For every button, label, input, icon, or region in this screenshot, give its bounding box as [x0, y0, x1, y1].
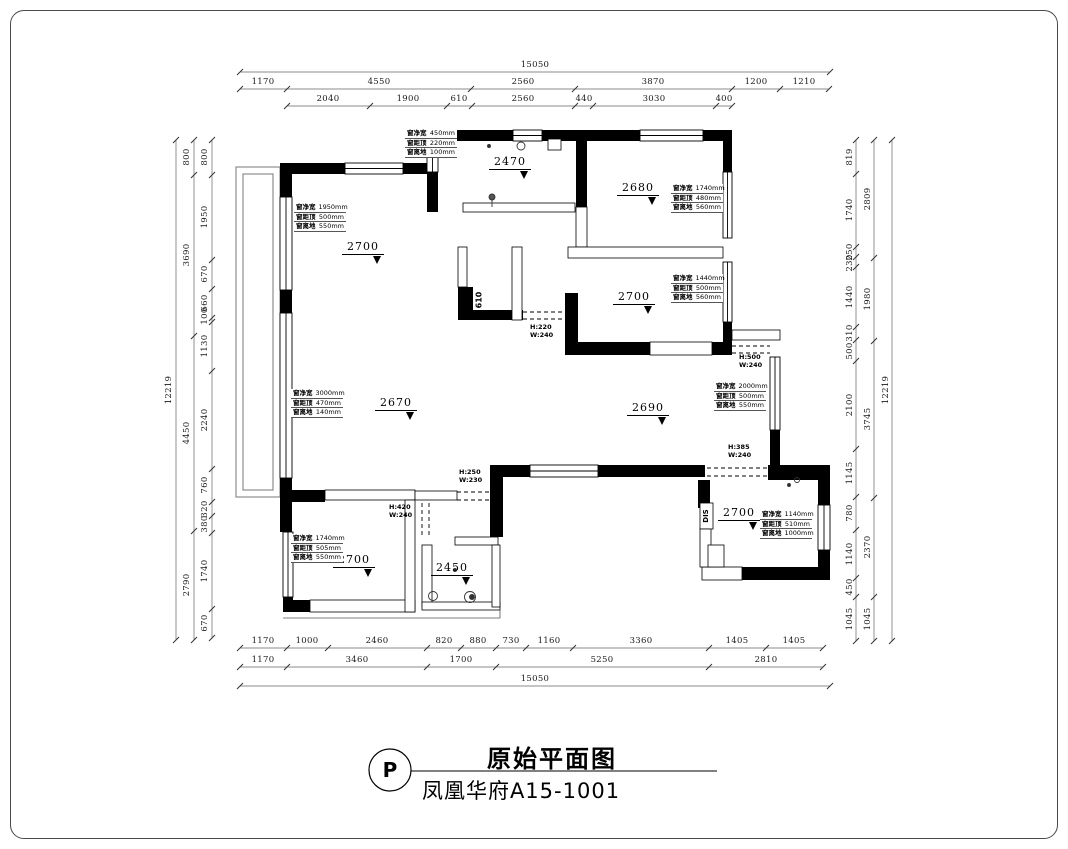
level-triangle-icon [406, 412, 414, 420]
level-triangle-icon [648, 197, 656, 205]
dim-label: 100 [200, 307, 210, 324]
dim-label: 820 [435, 636, 452, 646]
dim-label: 2100 [845, 394, 855, 417]
dim-label: 310 [845, 324, 855, 341]
dim-label: 800 [182, 148, 192, 165]
dim-label: 2040 [317, 94, 340, 104]
dim-label: 610 [450, 94, 467, 104]
dim-label: 2460 [366, 636, 389, 646]
level-triangle-icon [658, 417, 666, 425]
dim-label: 1700 [450, 655, 473, 665]
window-annotation: 窗净宽3000mm 窗距顶470mm 窗离地140mm [291, 389, 343, 418]
drawing-subtitle: 凤凰华府A15-1001 [422, 775, 620, 805]
dim-label: 2809 [863, 188, 873, 211]
dim-label: 15050 [521, 60, 550, 70]
dim-label: 3030 [643, 94, 666, 104]
dim-label: 1210 [793, 77, 816, 87]
dim-label: 4550 [368, 77, 391, 87]
dim-label: 730 [502, 636, 519, 646]
window-annotation: 窗净宽1740mm 窗距顶505mm 窗离地550mm [291, 534, 343, 563]
dim-label: 1045 [863, 608, 873, 631]
dim-label: 5250 [591, 655, 614, 665]
dim-label: 15050 [521, 674, 550, 684]
drawing-title: 原始平面图 [487, 739, 617, 774]
dim-label: 380 [200, 515, 210, 532]
level-label: 2700 [718, 507, 760, 530]
dim-label: 1145 [845, 462, 855, 485]
level-triangle-icon [520, 171, 528, 179]
dim-label: 2810 [755, 655, 778, 665]
beam-annotation: H:220W:240 [530, 324, 553, 339]
dis-label: DIS [702, 509, 710, 522]
dim-label: 819 [845, 148, 855, 165]
dim-label: 1130 [200, 335, 210, 358]
beam-annotation: H:500W:240 [739, 354, 762, 369]
dim-label: 1160 [538, 636, 561, 646]
level-label: 2470 [489, 156, 531, 179]
dim-label: 800 [200, 148, 210, 165]
dim-label: 1950 [200, 206, 210, 229]
dim-label: 4450 [182, 422, 192, 445]
dim-label: 500 [845, 342, 855, 359]
window-annotation: 窗净宽1950mm 窗距顶500mm 窗离地550mm [294, 203, 346, 232]
dim-label: 1170 [252, 77, 275, 87]
dim-label: 3745 [863, 408, 873, 431]
dim-label: 1440 [845, 286, 855, 309]
level-triangle-icon [644, 306, 652, 314]
window-annotation: 窗净宽2000mm 窗距顶500mm 窗离地550mm [714, 382, 766, 411]
window-annotation: 窗净宽450mm 窗距顶220mm 窗离地100mm [405, 129, 457, 158]
shaft-width-label: 610 [475, 292, 484, 309]
dim-label: 760 [200, 476, 210, 493]
dim-label: 1740 [200, 560, 210, 583]
level-triangle-icon [749, 522, 757, 530]
dim-label: 2240 [200, 409, 210, 432]
dim-label: 1045 [845, 608, 855, 631]
dim-label: 780 [845, 504, 855, 521]
dim-label: 12219 [881, 376, 891, 405]
dim-label: 1405 [783, 636, 806, 646]
dim-label: 1170 [252, 636, 275, 646]
balcony-railing [236, 167, 280, 497]
dim-label: 2560 [512, 77, 535, 87]
level-triangle-icon [364, 569, 372, 577]
level-triangle-icon [462, 577, 470, 585]
dim-label: 400 [715, 94, 732, 104]
dim-label: 230 [845, 254, 855, 271]
dim-label: 12219 [164, 376, 174, 405]
dim-label: 1980 [863, 288, 873, 311]
dim-label: 2790 [182, 574, 192, 597]
dim-label: 3870 [642, 77, 665, 87]
dim-label: 3360 [630, 636, 653, 646]
title-marker-letter: P [383, 758, 398, 782]
dim-label: 3690 [182, 244, 192, 267]
dim-label: 440 [575, 94, 592, 104]
dim-label: 670 [200, 614, 210, 631]
window-annotation: 窗净宽1740mm 窗距顶480mm 窗离地560mm [671, 184, 723, 213]
dim-label: 880 [469, 636, 486, 646]
floorplan-page: 15050 1170 4550 2560 3870 1200 1210 2040… [0, 0, 1068, 849]
walls-structural [280, 130, 830, 612]
dim-label: 1140 [845, 543, 855, 566]
dim-label: 450 [845, 578, 855, 595]
dim-label: 1200 [745, 77, 768, 87]
beam-annotation: H:385W:240 [728, 444, 751, 459]
level-label: 2690 [627, 402, 669, 425]
dim-label: 1170 [252, 655, 275, 665]
level-label: 2680 [617, 182, 659, 205]
level-label: 2450 [431, 562, 473, 585]
window-annotation: 窗净宽1440mm 窗距顶500mm 窗离地560mm [671, 274, 723, 303]
dim-label: 1405 [726, 636, 749, 646]
level-label: 2700 [342, 241, 384, 264]
window-annotation: 窗净宽1140mm 窗距顶510mm 窗离地1000mm [760, 510, 812, 539]
floorplan-svg [0, 0, 1068, 849]
level-label: 2700 [613, 291, 655, 314]
dim-label: 2370 [863, 536, 873, 559]
dim-label: 1900 [397, 94, 420, 104]
dim-label: 2560 [512, 94, 535, 104]
beam-annotation: H:250W:230 [459, 469, 482, 484]
dim-label: 1000 [296, 636, 319, 646]
dim-label: 1740 [845, 199, 855, 222]
beam-annotation: H:420W:240 [389, 504, 412, 519]
dim-label: 670 [200, 265, 210, 282]
level-label: 2670 [375, 397, 417, 420]
dim-label: 3460 [346, 655, 369, 665]
level-triangle-icon [373, 256, 381, 264]
